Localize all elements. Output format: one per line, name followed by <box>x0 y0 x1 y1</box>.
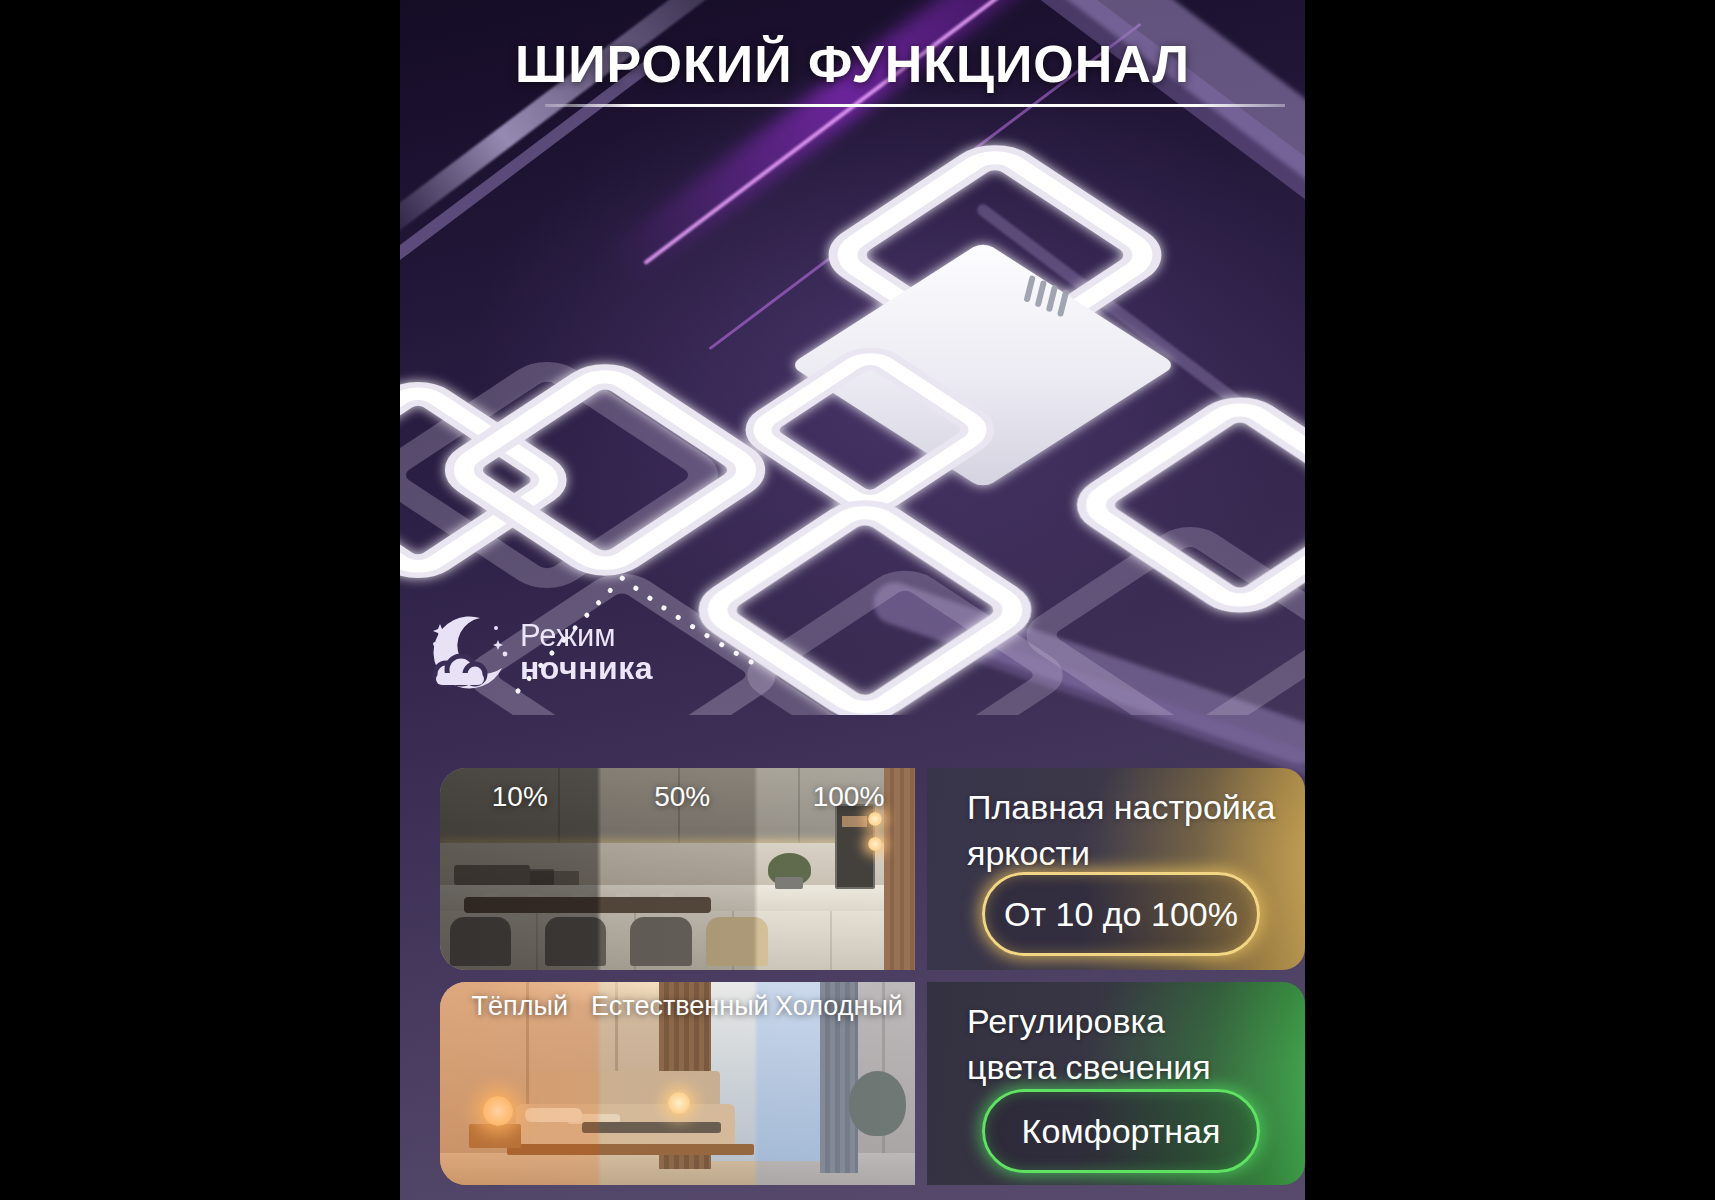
color-temp-label: Тёплый <box>472 991 568 1022</box>
night-mode-label-line2: ночника <box>520 652 653 685</box>
kitchen-photo: 10% 50% 100% <box>440 768 915 970</box>
night-mode-label: Режим ночника <box>426 610 653 696</box>
bedroom-photo: Тёплый Естественный Холодный <box>440 982 915 1185</box>
brightness-heading: Плавная настройка яркости <box>967 785 1275 877</box>
brightness-row: 10% 50% 100% Плавная настройка яркости О… <box>440 768 1305 970</box>
brightness-panel: Плавная настройка яркости От 10 до 100% <box>927 768 1305 970</box>
color-temperature-heading: Регулировка цвета свечения <box>967 999 1211 1091</box>
brightness-badge-text: От 10 до 100% <box>1004 895 1238 934</box>
night-mode-label-line1: Режим <box>520 620 653 652</box>
color-temperature-badge-text: Комфортная <box>1022 1112 1221 1151</box>
brightness-level-label: 50% <box>654 781 710 813</box>
moon-icon <box>426 610 512 696</box>
color-temp-label: Естественный <box>591 991 769 1022</box>
color-temperature-badge: Комфортная <box>982 1089 1260 1173</box>
color-temperature-heading-line2: цвета свечения <box>967 1045 1211 1091</box>
title-underline <box>545 104 1285 107</box>
color-temperature-heading-line1: Регулировка <box>967 999 1211 1045</box>
led-ring-back <box>835 150 1155 361</box>
color-temperature-panel: Регулировка цвета свечения Комфортная <box>927 982 1305 1185</box>
poster-background: ШИРОКИЙ ФУНКЦИОНАЛ <box>400 0 1305 1200</box>
ceiling-mount-base <box>789 241 1176 489</box>
brightness-level-label: 10% <box>492 781 548 813</box>
brightness-heading-line1: Плавная настройка <box>967 785 1275 831</box>
brightness-level-label: 100% <box>813 781 885 813</box>
led-ring-center <box>753 353 988 508</box>
page-title: ШИРОКИЙ ФУНКЦИОНАЛ <box>400 34 1305 94</box>
brightness-badge: От 10 до 100% <box>982 872 1260 956</box>
led-ring-left <box>452 369 757 571</box>
brightness-heading-line2: яркости <box>967 831 1275 877</box>
vent-slots-icon <box>1022 275 1071 317</box>
color-temp-label: Холодный <box>775 991 903 1022</box>
led-ring-far-left <box>400 387 559 574</box>
color-temperature-row: Тёплый Естественный Холодный Регулировка… <box>440 982 1305 1185</box>
light-beam <box>975 202 1305 470</box>
